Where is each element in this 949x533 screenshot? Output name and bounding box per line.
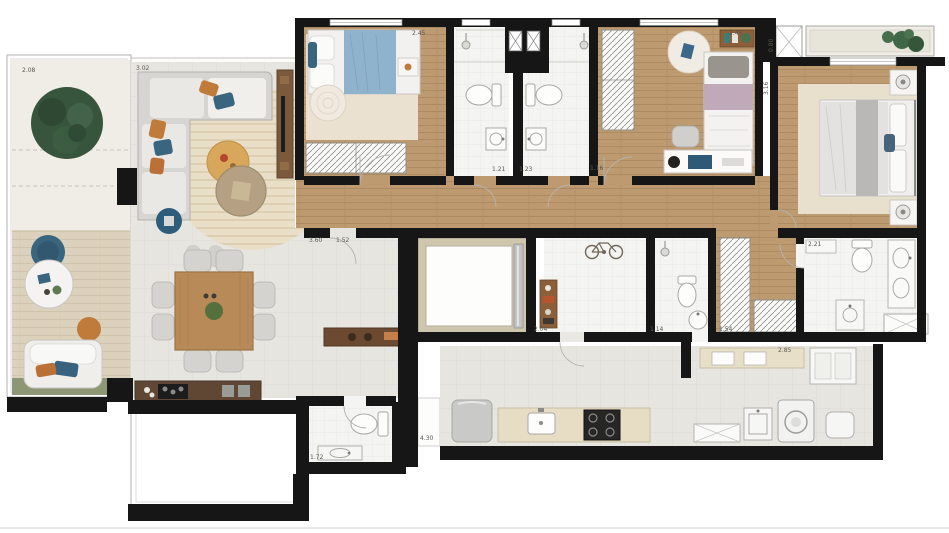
elevator	[418, 238, 528, 334]
toilet-icon	[466, 84, 501, 106]
planter-box	[776, 26, 934, 58]
floor-plan-drawing: 2.08 3.02 2.45 1.21 1.23 1.16 2.45 0.80 …	[0, 0, 949, 533]
dim-kitchen: 2.85	[778, 347, 792, 354]
nightstand-icon	[890, 200, 917, 225]
sink-icon	[486, 128, 506, 150]
dim-bedroom1: 2.45	[412, 30, 426, 37]
toilet-icon	[526, 84, 562, 106]
dim-powder: 1.72	[310, 454, 324, 461]
dim-living: 3.02	[136, 65, 150, 72]
side-table-icon	[216, 166, 266, 216]
outdoor-armchair-icon	[24, 340, 102, 388]
dim-bath2: 1.23	[519, 166, 533, 173]
dim-planter: 0.80	[768, 38, 775, 52]
single-bed-icon	[704, 52, 753, 164]
shelf-icon	[540, 280, 557, 328]
dim-hall-wid: 1.52	[336, 237, 350, 244]
wardrobe-icon	[754, 300, 802, 332]
desk-icon	[664, 150, 752, 173]
toilet-icon	[852, 240, 872, 272]
sink-icon	[318, 446, 362, 460]
dining-table-icon	[175, 272, 253, 350]
kitchen-counter	[498, 408, 650, 442]
dim-bedroom2: 2.45	[729, 30, 743, 37]
sink-icon	[836, 300, 864, 330]
dim-bedroom2-left: 1.16	[590, 165, 604, 172]
toilet-icon	[351, 412, 388, 436]
cooktop-icon	[584, 410, 620, 440]
dim-closet: 1.54	[719, 326, 733, 333]
dim-service-hall: 2.04	[534, 326, 548, 333]
round-jute-rug-icon	[310, 85, 346, 121]
desk-chair-icon	[672, 126, 699, 147]
cabinet-icon	[810, 348, 856, 384]
washing-machine-icon	[778, 400, 814, 442]
fridge-icon	[452, 400, 492, 442]
wardrobe-icon	[306, 143, 406, 173]
plant-centerpiece-icon	[205, 302, 223, 320]
dim-master: 3.16	[763, 81, 770, 95]
wardrobe-icon	[602, 30, 634, 130]
dining-floor	[131, 228, 412, 398]
floor-plan-page: 2.08 3.02 2.45 1.21 1.23 1.16 2.45 0.80 …	[0, 0, 949, 533]
laptop-icon	[688, 155, 712, 169]
round-table-icon	[25, 260, 73, 308]
laundry-sink-icon	[744, 408, 772, 440]
shower-icon	[661, 248, 669, 256]
console-icon	[324, 328, 408, 346]
dim-master-bath: 2.21	[808, 241, 822, 248]
bedroom-1	[306, 30, 420, 173]
wardrobe-icon	[720, 238, 750, 332]
stool-icon	[826, 412, 854, 438]
toilet-icon	[678, 276, 696, 307]
pouf-icon	[77, 317, 101, 341]
tree-icon	[31, 87, 103, 159]
dim-terrace: 2.08	[22, 67, 36, 74]
double-bed-icon	[820, 100, 917, 196]
island-counter-icon	[135, 381, 261, 402]
dim-bath1: 1.21	[492, 166, 506, 173]
dim-hall-len: 3.60	[309, 237, 323, 244]
tv-panel-icon	[277, 70, 293, 178]
master-bedroom	[798, 70, 917, 225]
dim-passage: 4.30	[420, 435, 434, 442]
dim-service-bath: 1.14	[650, 326, 664, 333]
vanity-icon	[888, 240, 915, 308]
ironing-table-icon	[694, 424, 740, 442]
sink-icon	[526, 128, 546, 150]
nightstand-icon	[890, 70, 917, 95]
